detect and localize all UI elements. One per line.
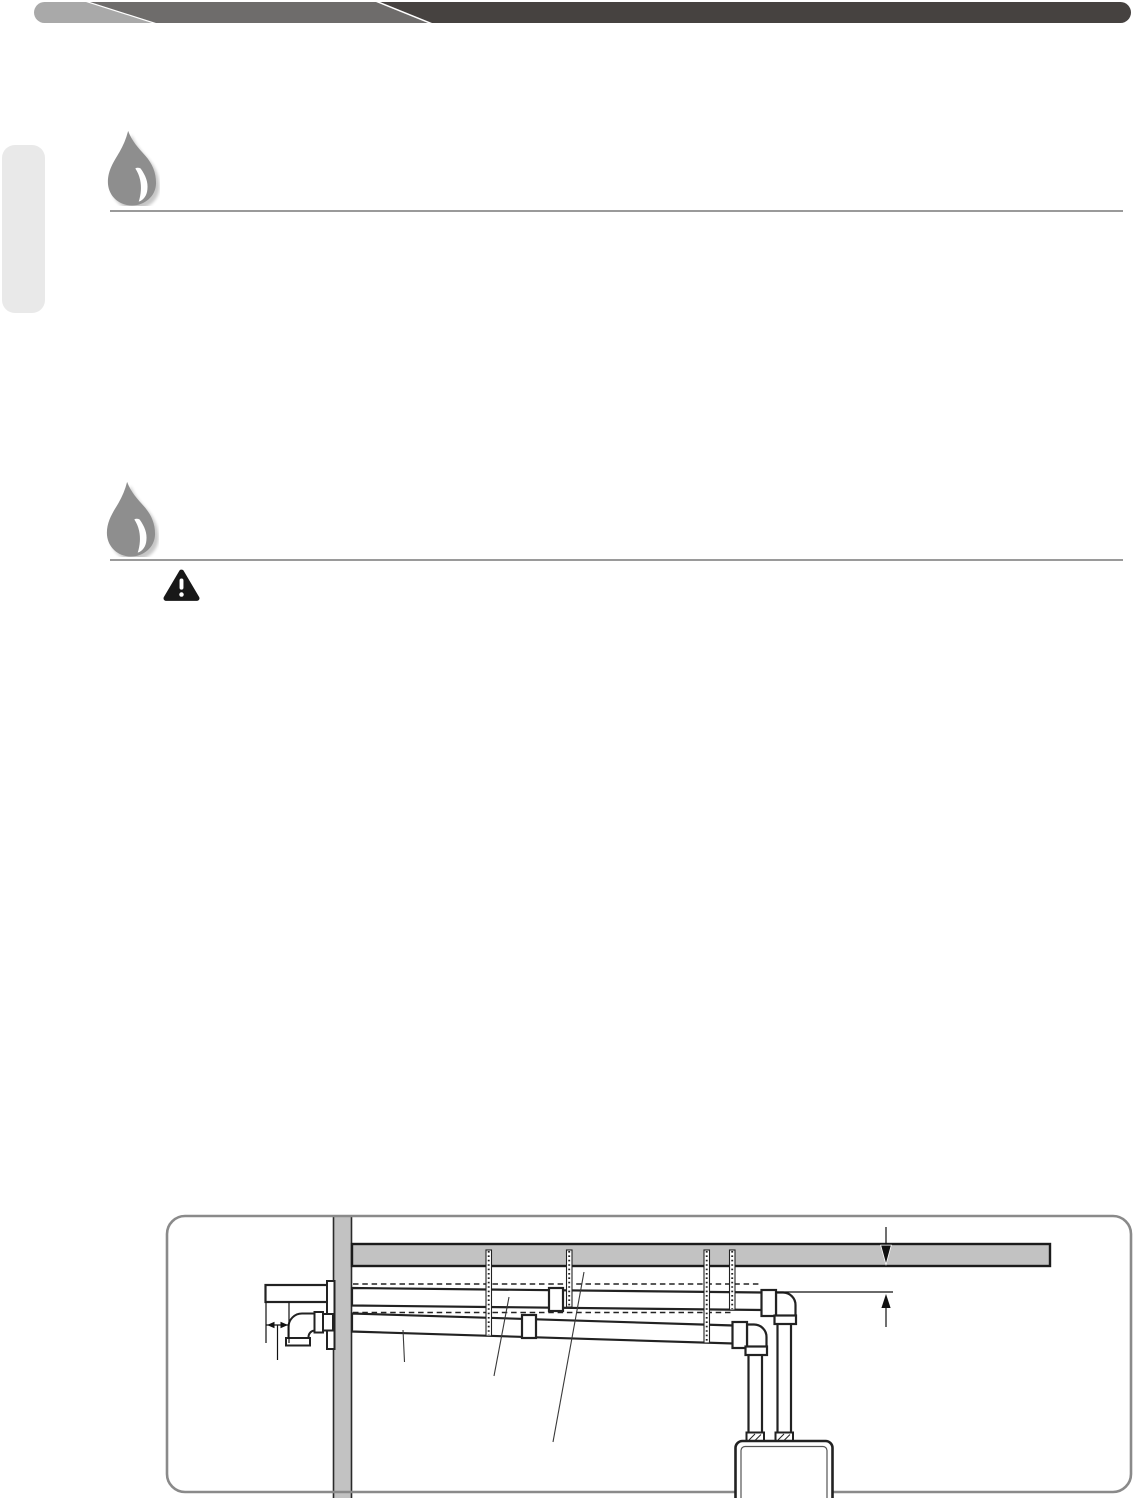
section-rule bbox=[110, 559, 1123, 561]
hanger-strap bbox=[704, 1250, 710, 1343]
pipe-coupler bbox=[522, 1315, 536, 1338]
header-banner bbox=[0, 0, 1137, 30]
exhaust-down-elbow bbox=[762, 1290, 797, 1434]
hanger-strap bbox=[567, 1250, 573, 1307]
exclamation-dot bbox=[179, 592, 184, 597]
vertical-pipe bbox=[778, 1320, 792, 1434]
offset-dimension-arrows bbox=[266, 1303, 289, 1361]
manual-page bbox=[0, 0, 1137, 1498]
banner-right-segment bbox=[380, 2, 1131, 23]
water-heater bbox=[736, 1433, 833, 1498]
elbow-body bbox=[776, 1293, 796, 1317]
page-edge-tab bbox=[2, 145, 45, 313]
warning-triangle-icon bbox=[163, 568, 200, 603]
elbow-collar bbox=[733, 1322, 748, 1348]
elbow-collar bbox=[762, 1290, 777, 1316]
intake-pipe-run bbox=[352, 1314, 733, 1344]
room-structure bbox=[334, 1216, 1051, 1498]
exterior-wall bbox=[334, 1216, 352, 1498]
elbow-body bbox=[747, 1325, 767, 1348]
vent-termination-stub bbox=[266, 1285, 332, 1302]
pipe-coupler bbox=[549, 1288, 563, 1311]
elbow-collar bbox=[315, 1312, 324, 1333]
water-drop-icon bbox=[102, 128, 160, 206]
leader-line bbox=[403, 1330, 405, 1362]
drop-body bbox=[108, 131, 156, 206]
elbow-outlet-collar bbox=[746, 1347, 768, 1356]
section-rule bbox=[110, 210, 1123, 212]
elbow-body bbox=[289, 1314, 315, 1340]
water-drop-icon bbox=[101, 479, 159, 557]
ceiling bbox=[352, 1244, 1050, 1266]
intake-elbow bbox=[286, 1312, 333, 1346]
hanger-strap bbox=[730, 1250, 736, 1310]
vent-installation-figure bbox=[150, 1190, 1137, 1498]
vertical-pipe bbox=[749, 1350, 763, 1434]
heater-cabinet bbox=[736, 1441, 833, 1498]
hanger-strap bbox=[486, 1250, 492, 1336]
intake-down-elbow bbox=[733, 1322, 768, 1434]
drop-body bbox=[107, 482, 155, 557]
elbow-outlet-collar bbox=[775, 1316, 797, 1325]
exclamation-bar bbox=[180, 579, 184, 590]
